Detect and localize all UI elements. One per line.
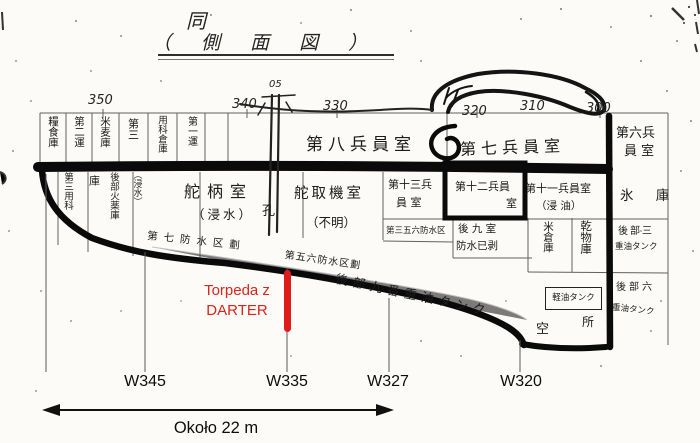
torpedo-annotation-line1: Torpeda z [176,281,298,301]
store-no2-ops: 第二運 [73,116,84,162]
aft-oil-tank-3-line1: 後部三 [618,222,654,237]
crew-space-11-oil-note: （浸 油） [536,198,581,213]
arrowhead-left [42,404,60,416]
scale-label: Około 22 m [174,419,258,438]
station-300: 300 [586,101,611,116]
crew-space-13-line2: 員 室 [396,194,422,210]
title-underline [158,54,394,60]
flooded-note-vertical: （浸水） [131,170,140,230]
station-05: 05 [269,79,282,90]
page-title: （ 側 面 図 ） [152,28,379,55]
hole-char: 孔 [262,200,275,219]
rice-store-lower: 米倉庫 [542,221,553,271]
aft-oil-tank-3-line2: 重油タンク [615,240,658,252]
store-rice: 米麦庫 [99,116,110,162]
crew-space-11: 第十一兵員室 [525,180,591,196]
torpedo-annotation: Torpeda z DARTER [176,281,298,321]
aft-oil-tank-6-line1: 後部六 [616,278,655,293]
aft-magazine: 後部火薬庫 [108,172,118,234]
watertight-section-356: 第三五六防水区 [386,224,446,236]
store-no1-ops: 第一運 [185,116,196,162]
crew-space-12-line1: 第十二兵員 [455,178,510,194]
crew-space-12-line2: 室 [506,195,517,211]
station-330: 330 [323,99,348,114]
ice-store: 氷 庫 [620,184,678,204]
crew-space-13-line1: 第十三兵 [388,176,432,192]
station-310: 310 [520,99,545,114]
frame-label-w345: W345 [124,373,166,391]
tiller-room: 舵柄室 [184,178,253,202]
crew-space-8: 第八兵員室 [306,130,416,155]
scale-arrow [42,404,394,416]
void-space-char2: 所 [582,313,594,330]
aft-9-room-line1: 後 九 室 [458,221,496,236]
store-no3: 第三 [127,118,139,164]
store-char: 庫 [88,175,100,195]
aft-equipment-store: 第三用科 [62,172,72,230]
store-equipment: 用科倉庫 [156,115,166,163]
tiller-room-flooded-note: （浸水） [192,204,254,223]
hull-keel [522,344,606,348]
light-oil-tank-box: 軽油タンク [545,287,602,310]
station-340: 340 [232,97,257,112]
station-320: 320 [462,104,487,119]
steering-unknown-note: （不明） [306,212,356,231]
dried-goods-store: 乾物庫 [580,220,592,272]
crew-space-6-line1: 第六兵 [616,122,655,141]
station-350: 350 [88,93,113,108]
aft-9-room-line2: 防水已剥 [456,238,498,253]
hand-drawn-loop [431,126,459,158]
blob-sketch [432,72,605,114]
arrowhead-right [376,404,394,416]
frame-label-w320: W320 [500,373,542,391]
hull-aft-vertical [609,116,610,347]
frame-label-w327: W327 [367,373,409,391]
void-space-char1: 空 [536,318,549,337]
store-provisions: 糧食庫 [47,116,58,162]
light-oil-tank-label: 軽油タンク [546,288,601,308]
torpedo-annotation-line2: DARTER [176,301,298,321]
scanned-diagram-page: 同 （ 側 面 図 ） 350 340 05 330 320 310 300 糧… [0,0,700,443]
crew-space-7: 第七兵員室 [460,132,566,160]
steering-gear-room: 舵取機室 [294,182,364,203]
frame-label-w335: W335 [266,373,308,391]
crew-space-6-line2: 員 室 [624,140,654,159]
